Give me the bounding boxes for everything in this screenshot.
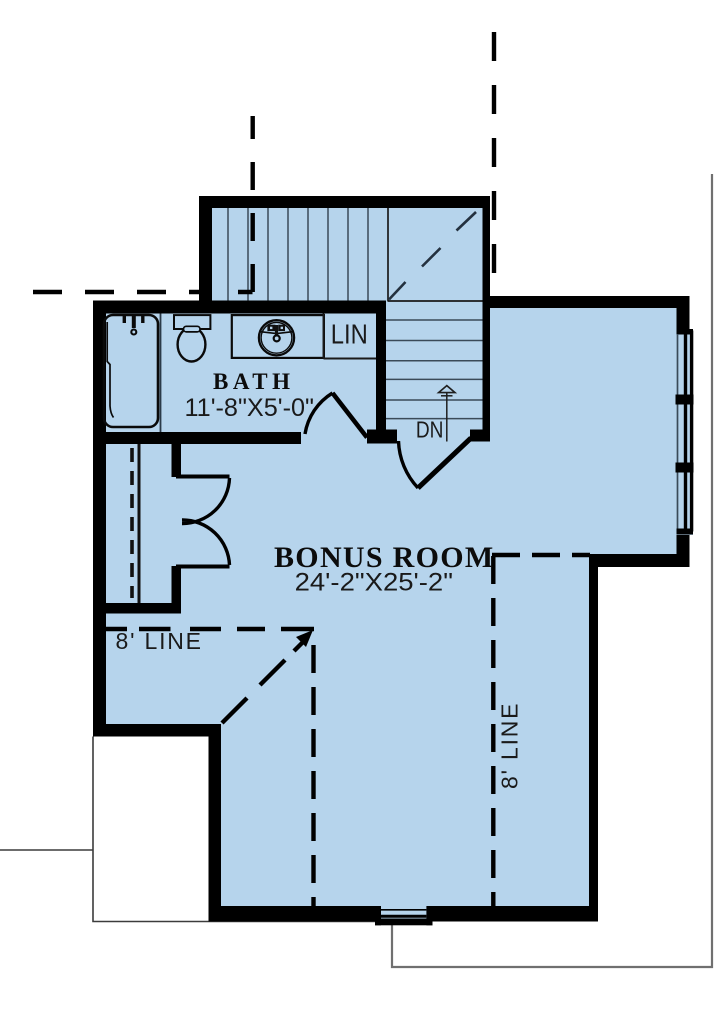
svg-text:LIN: LIN (331, 318, 368, 350)
svg-text:8' LINE: 8' LINE (497, 702, 523, 789)
svg-text:11'-8"X5'-0": 11'-8"X5'-0" (185, 394, 314, 422)
svg-text:24'-2"X25'-2": 24'-2"X25'-2" (295, 568, 453, 597)
svg-text:8' LINE: 8' LINE (116, 628, 203, 654)
svg-text:BATH: BATH (213, 369, 294, 394)
svg-text:DN: DN (416, 418, 444, 443)
